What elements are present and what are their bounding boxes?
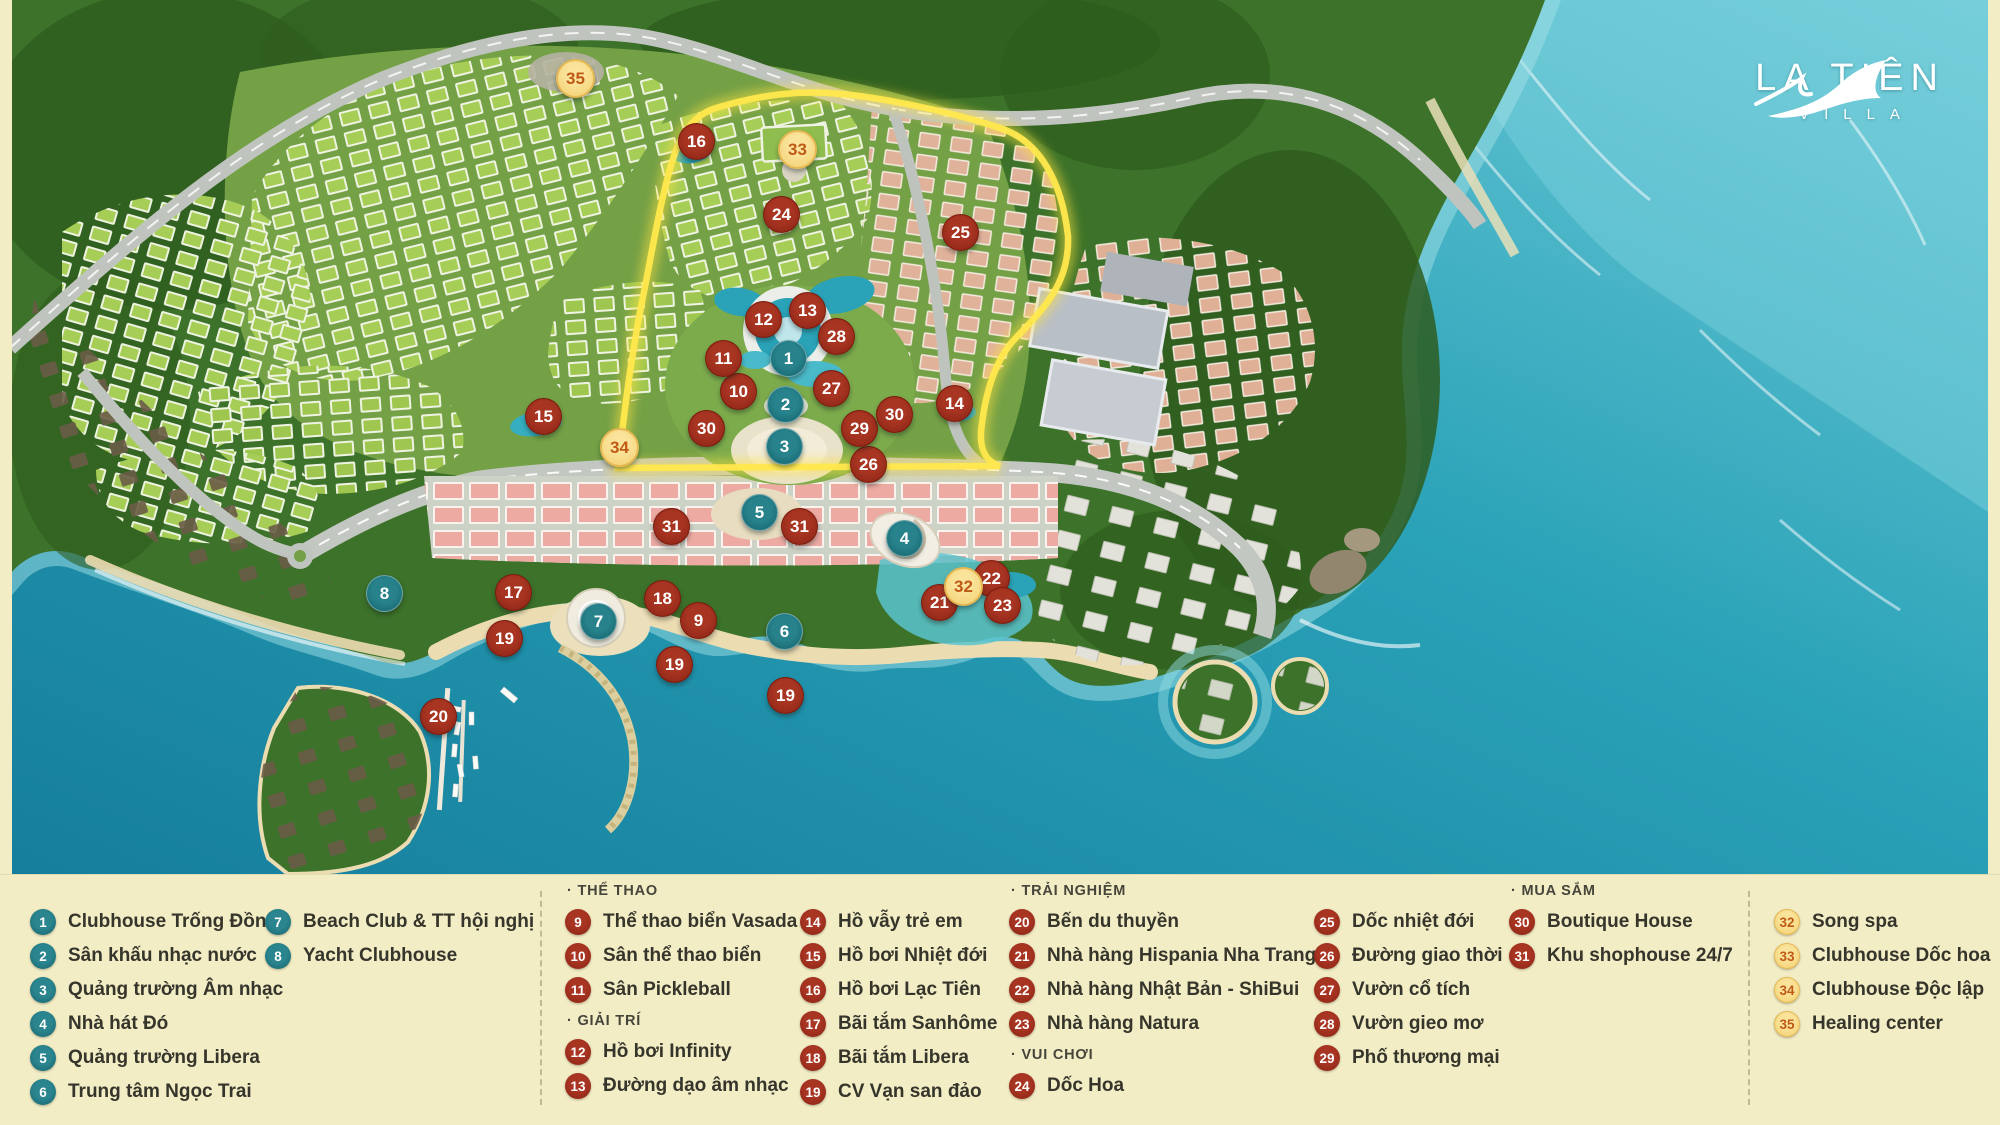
legend-item-7: 7Beach Club & TT hội nghị <box>265 905 534 939</box>
map-marker-31[interactable]: 31 <box>653 508 690 545</box>
map-marker-3[interactable]: 3 <box>766 428 803 465</box>
legend-item-number: 29 <box>1314 1045 1340 1071</box>
legend-item-number: 4 <box>30 1011 56 1037</box>
legend-item-12: 12Hồ bơi Infinity <box>565 1035 797 1069</box>
legend-item-29: 29Phố thương mại <box>1314 1041 1503 1075</box>
map-marker-8[interactable]: 8 <box>366 575 403 612</box>
legend-item-number: 12 <box>565 1039 591 1065</box>
legend-item-33: 33Clubhouse Dốc hoa <box>1774 939 1990 973</box>
legend-item-19: 19CV Vạn san đảo <box>800 1075 997 1109</box>
legend-column: 7Beach Club & TT hội nghị8Yacht Clubhous… <box>265 877 534 973</box>
legend-item-9: 9Thể thao biển Vasada <box>565 905 797 939</box>
legend-item-15: 15Hồ bơi Nhiệt đới <box>800 939 997 973</box>
legend-column: 32Song spa33Clubhouse Dốc hoa34Clubhouse… <box>1774 877 1990 1041</box>
map-marker-12[interactable]: 12 <box>745 301 782 338</box>
legend-item-label: Trung tâm Ngọc Trai <box>68 1081 252 1103</box>
legend-item-label: Khu shophouse 24/7 <box>1547 945 1733 967</box>
legend-item-label: Nhà hàng Hispania Nha Trang <box>1047 945 1316 967</box>
legend-item-8: 8Yacht Clubhouse <box>265 939 534 973</box>
legend-item-number: 23 <box>1009 1011 1035 1037</box>
legend-item-number: 13 <box>565 1073 591 1099</box>
legend-item-3: 3Quảng trường Âm nhạc <box>30 973 283 1007</box>
legend-section-header: · TRẢI NGHIỆM <box>1011 877 1316 905</box>
legend-item-1: 1Clubhouse Trống Đồng <box>30 905 283 939</box>
legend-item-label: Quảng trường Libera <box>68 1047 260 1069</box>
legend-item-6: 6Trung tâm Ngọc Trai <box>30 1075 283 1109</box>
legend-column: 25Dốc nhiệt đới26Đường giao thời27Vườn c… <box>1314 877 1503 1075</box>
legend-item-label: Phố thương mại <box>1352 1047 1500 1069</box>
legend-item-number: 2 <box>30 943 56 969</box>
legend-item-number: 1 <box>30 909 56 935</box>
legend-column: 1Clubhouse Trống Đồng2Sân khấu nhạc nước… <box>30 877 283 1109</box>
legend-item-4: 4Nhà hát Đó <box>30 1007 283 1041</box>
legend-item-label: Hồ bơi Infinity <box>603 1041 732 1063</box>
legend-item-2: 2Sân khấu nhạc nước <box>30 939 283 973</box>
resort-aerial-map <box>0 0 2000 874</box>
legend-item-number: 16 <box>800 977 826 1003</box>
legend-item-30: 30Boutique House <box>1509 905 1733 939</box>
legend-section-header: · VUI CHƠI <box>1011 1041 1316 1069</box>
legend-item-number: 26 <box>1314 943 1340 969</box>
legend-item-25: 25Dốc nhiệt đới <box>1314 905 1503 939</box>
map-marker-19[interactable]: 19 <box>486 620 523 657</box>
legend-item-35: 35Healing center <box>1774 1007 1990 1041</box>
legend-item-number: 30 <box>1509 909 1535 935</box>
map-marker-13[interactable]: 13 <box>789 292 826 329</box>
map-marker-32[interactable]: 32 <box>944 567 983 606</box>
map-marker-33[interactable]: 33 <box>778 130 817 169</box>
legend-item-label: Yacht Clubhouse <box>303 945 457 967</box>
map-marker-1[interactable]: 1 <box>770 340 807 377</box>
map-marker-2[interactable]: 2 <box>767 386 804 423</box>
legend-item-number: 3 <box>30 977 56 1003</box>
map-marker-11[interactable]: 11 <box>705 340 742 377</box>
legend-item-label: Vườn cổ tích <box>1352 979 1470 1001</box>
legend-item-number: 25 <box>1314 909 1340 935</box>
map-marker-30[interactable]: 30 <box>688 410 725 447</box>
legend-item-label: Đường dạo âm nhạc <box>603 1075 789 1097</box>
legend-item-number: 7 <box>265 909 291 935</box>
legend-item-32: 32Song spa <box>1774 905 1990 939</box>
legend-item-label: Dốc nhiệt đới <box>1352 911 1474 933</box>
legend-item-22: 22Nhà hàng Nhật Bản - ShiBui <box>1009 973 1316 1007</box>
legend-item-number: 19 <box>800 1079 826 1105</box>
map-marker-25[interactable]: 25 <box>942 214 979 251</box>
brand-logo: LA TIÊN VILLA <box>1750 58 1950 123</box>
legend-item-14: 14Hồ vẫy trẻ em <box>800 905 997 939</box>
map-area: 1234567891011121314151617181919192021222… <box>0 0 2000 874</box>
legend-item-20: 20Bến du thuyền <box>1009 905 1316 939</box>
legend-item-number: 34 <box>1774 977 1800 1003</box>
legend-item-number: 33 <box>1774 943 1800 969</box>
legend-item-label: Dốc Hoa <box>1047 1075 1124 1097</box>
legend-panel: 1Clubhouse Trống Đồng2Sân khấu nhạc nước… <box>0 874 2000 1125</box>
legend-item-34: 34Clubhouse Độc lập <box>1774 973 1990 1007</box>
legend-item-label: Bãi tắm Libera <box>838 1047 969 1069</box>
legend-item-label: Bãi tắm Sanhôme <box>838 1013 997 1035</box>
legend-item-number: 15 <box>800 943 826 969</box>
legend-column: · THỂ THAO9Thể thao biển Vasada10Sân thể… <box>565 877 797 1103</box>
legend-item-26: 26Đường giao thời <box>1314 939 1503 973</box>
map-marker-26[interactable]: 26 <box>850 446 887 483</box>
legend-item-13: 13Đường dạo âm nhạc <box>565 1069 797 1103</box>
legend-item-27: 27Vườn cổ tích <box>1314 973 1503 1007</box>
map-marker-18[interactable]: 18 <box>644 580 681 617</box>
legend-item-label: Nhà hàng Nhật Bản - ShiBui <box>1047 979 1299 1001</box>
legend-item-label: Bến du thuyền <box>1047 911 1179 933</box>
legend-item-label: Boutique House <box>1547 911 1693 933</box>
map-marker-19[interactable]: 19 <box>656 646 693 683</box>
map-marker-7[interactable]: 7 <box>580 603 617 640</box>
legend-item-label: Clubhouse Trống Đồng <box>68 911 278 933</box>
legend-item-label: Song spa <box>1812 911 1898 933</box>
legend-item-number: 21 <box>1009 943 1035 969</box>
legend-item-18: 18Bãi tắm Libera <box>800 1041 997 1075</box>
legend-item-21: 21Nhà hàng Hispania Nha Trang <box>1009 939 1316 973</box>
map-marker-5[interactable]: 5 <box>741 494 778 531</box>
legend-item-number: 8 <box>265 943 291 969</box>
legend-item-28: 28Vườn gieo mơ <box>1314 1007 1503 1041</box>
legend-item-label: Hồ bơi Lạc Tiên <box>838 979 981 1001</box>
map-marker-24[interactable]: 24 <box>763 196 800 233</box>
legend-item-number: 35 <box>1774 1011 1800 1037</box>
map-marker-35[interactable]: 35 <box>556 59 595 98</box>
legend-item-number: 20 <box>1009 909 1035 935</box>
map-marker-9[interactable]: 9 <box>680 602 717 639</box>
legend-item-number: 32 <box>1774 909 1800 935</box>
legend-item-10: 10Sân thể thao biển <box>565 939 797 973</box>
map-marker-19[interactable]: 19 <box>767 677 804 714</box>
map-marker-17[interactable]: 17 <box>495 574 532 611</box>
map-marker-6[interactable]: 6 <box>766 613 803 650</box>
legend-item-24: 24Dốc Hoa <box>1009 1069 1316 1103</box>
map-marker-16[interactable]: 16 <box>678 123 715 160</box>
legend-item-label: Clubhouse Dốc hoa <box>1812 945 1990 967</box>
legend-item-label: Đường giao thời <box>1352 945 1503 967</box>
legend-item-number: 5 <box>30 1045 56 1071</box>
legend-item-17: 17Bãi tắm Sanhôme <box>800 1007 997 1041</box>
legend-item-31: 31Khu shophouse 24/7 <box>1509 939 1733 973</box>
legend-item-number: 31 <box>1509 943 1535 969</box>
wave-icon <box>1750 58 1900 122</box>
legend-item-number: 22 <box>1009 977 1035 1003</box>
map-marker-14[interactable]: 14 <box>936 385 973 422</box>
legend-item-16: 16Hồ bơi Lạc Tiên <box>800 973 997 1007</box>
legend-section-header: · MUA SẮM <box>1511 877 1733 905</box>
legend-column: 14Hồ vẫy trẻ em15Hồ bơi Nhiệt đới16Hồ bơ… <box>800 877 997 1109</box>
legend-item-number: 28 <box>1314 1011 1340 1037</box>
legend-item-label: Vườn gieo mơ <box>1352 1013 1484 1035</box>
map-marker-20[interactable]: 20 <box>420 698 457 735</box>
legend-separator <box>1748 891 1750 1105</box>
map-marker-30[interactable]: 30 <box>876 396 913 433</box>
legend-item-number: 10 <box>565 943 591 969</box>
map-marker-28[interactable]: 28 <box>818 318 855 355</box>
map-marker-34[interactable]: 34 <box>600 428 639 467</box>
map-marker-4[interactable]: 4 <box>886 520 923 557</box>
legend-item-number: 17 <box>800 1011 826 1037</box>
map-marker-31[interactable]: 31 <box>781 508 818 545</box>
map-marker-15[interactable]: 15 <box>525 398 562 435</box>
legend-column: · TRẢI NGHIỆM20Bến du thuyền21Nhà hàng H… <box>1009 877 1316 1103</box>
legend-item-23: 23Nhà hàng Natura <box>1009 1007 1316 1041</box>
legend-item-number: 27 <box>1314 977 1340 1003</box>
legend-item-number: 14 <box>800 909 826 935</box>
legend-item-label: Nhà hàng Natura <box>1047 1013 1199 1035</box>
legend-item-label: CV Vạn san đảo <box>838 1081 982 1103</box>
legend-item-label: Beach Club & TT hội nghị <box>303 911 534 933</box>
legend-section-header: · GIẢI TRÍ <box>567 1007 797 1035</box>
legend-item-label: Hồ bơi Nhiệt đới <box>838 945 987 967</box>
legend-column: · MUA SẮM30Boutique House31Khu shophouse… <box>1509 877 1733 973</box>
legend-item-label: Sân thể thao biển <box>603 945 761 967</box>
legend-item-label: Sân Pickleball <box>603 979 731 1001</box>
legend-section-header: · THỂ THAO <box>567 877 797 905</box>
legend-item-number: 11 <box>565 977 591 1003</box>
legend-item-number: 9 <box>565 909 591 935</box>
map-marker-23[interactable]: 23 <box>984 587 1021 624</box>
legend-item-label: Sân khấu nhạc nước <box>68 945 257 967</box>
legend-item-number: 6 <box>30 1079 56 1105</box>
legend-item-label: Quảng trường Âm nhạc <box>68 979 283 1001</box>
legend-item-number: 18 <box>800 1045 826 1071</box>
map-marker-29[interactable]: 29 <box>841 410 878 447</box>
page: 1234567891011121314151617181919192021222… <box>0 0 2000 1125</box>
legend-item-5: 5Quảng trường Libera <box>30 1041 283 1075</box>
map-marker-27[interactable]: 27 <box>813 370 850 407</box>
legend-item-11: 11Sân Pickleball <box>565 973 797 1007</box>
legend-item-label: Thể thao biển Vasada <box>603 911 797 933</box>
legend-item-number: 24 <box>1009 1073 1035 1099</box>
map-marker-10[interactable]: 10 <box>720 373 757 410</box>
legend-item-label: Hồ vẫy trẻ em <box>838 911 963 933</box>
legend-item-label: Clubhouse Độc lập <box>1812 979 1984 1001</box>
legend-item-label: Healing center <box>1812 1013 1943 1035</box>
legend-item-label: Nhà hát Đó <box>68 1013 168 1035</box>
legend-separator <box>540 891 542 1105</box>
